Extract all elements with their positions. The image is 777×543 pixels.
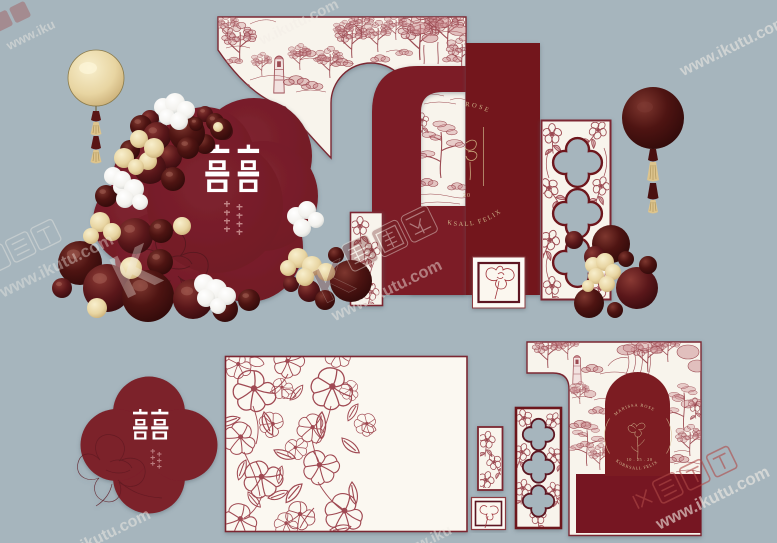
svg-text:20: 20: [463, 193, 471, 199]
svg-text:10 . 25 . 20: 10 . 25 . 20: [627, 457, 653, 462]
